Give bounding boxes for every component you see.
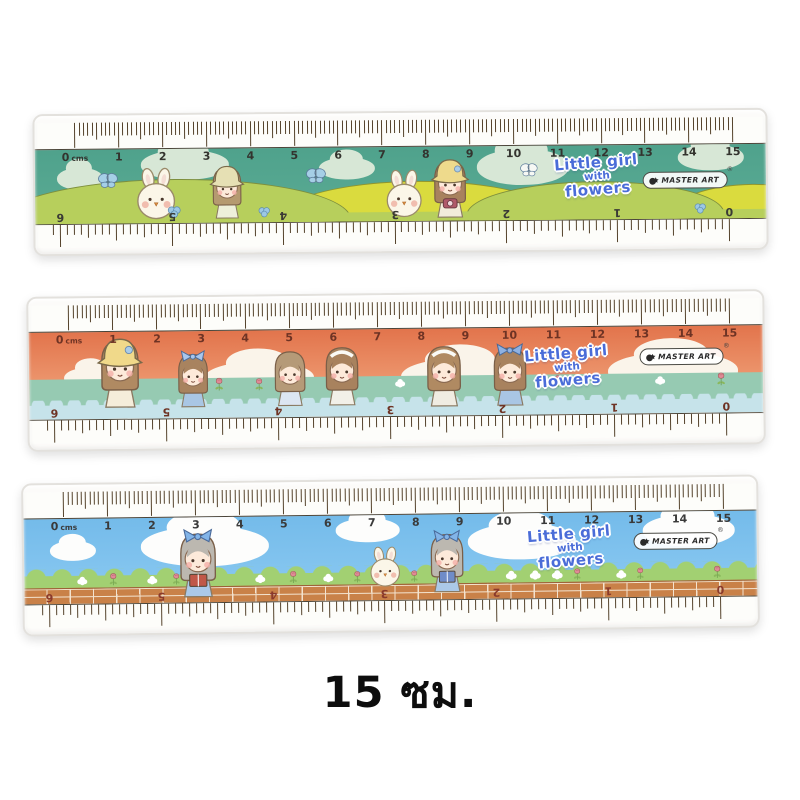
tick-mark [547, 486, 548, 511]
girl-illustration [425, 154, 475, 218]
tick-mark [107, 491, 108, 516]
tick-mark [552, 119, 553, 132]
tick-mark [406, 488, 407, 501]
tick-mark [182, 604, 183, 614]
tick-mark [464, 301, 465, 326]
tick-mark [258, 121, 259, 134]
tick-mark [169, 491, 170, 504]
tick-mark [153, 122, 154, 135]
tick-mark [165, 224, 166, 234]
tick-mark [504, 301, 505, 314]
tick-mark [434, 302, 435, 315]
tick-mark [544, 415, 545, 425]
tick-mark [162, 122, 163, 147]
tick-mark [133, 604, 134, 617]
tick-mark [461, 600, 462, 610]
tick-mark [663, 299, 664, 316]
tick-mark [175, 604, 176, 614]
tick-mark [292, 418, 293, 428]
tick-mark [639, 485, 640, 498]
tick-mark [287, 489, 288, 502]
tick-mark [437, 487, 438, 504]
tick-mark [429, 120, 430, 133]
tick-mark [127, 122, 128, 135]
tick-mark [687, 484, 688, 497]
tick-mark [358, 488, 359, 501]
tick-mark [530, 119, 531, 132]
tick-mark [231, 304, 232, 317]
tick-mark [407, 302, 408, 315]
tick-mark [715, 219, 716, 229]
tick-mark [177, 491, 178, 504]
tick-mark [699, 597, 700, 607]
tick-mark [116, 224, 117, 240]
tick-mark [86, 305, 87, 318]
tick-mark [328, 303, 329, 316]
tick-mark [684, 118, 685, 131]
tick-mark [398, 302, 399, 319]
tick-mark [490, 487, 491, 500]
tick-mark [236, 304, 237, 317]
tick-mark [481, 416, 482, 426]
tick-mark [84, 605, 85, 615]
tick-mark [81, 305, 82, 318]
tick-mark [197, 122, 198, 135]
tick-mark [472, 487, 473, 500]
tick-mark [509, 301, 510, 326]
tick-mark [227, 304, 228, 317]
tick-mark [683, 484, 684, 497]
tick-mark [664, 598, 665, 614]
tick-mark [433, 600, 434, 610]
tick-mark [600, 415, 601, 425]
tick-mark [182, 491, 183, 504]
tick-mark [253, 303, 254, 316]
tick-mark [302, 303, 303, 316]
tick-mark [285, 121, 286, 134]
tick-mark [287, 602, 288, 612]
tick-mark [166, 419, 167, 441]
tick-mark [96, 123, 97, 140]
tick-mark [545, 599, 546, 609]
tick-mark [508, 119, 509, 132]
tick-mark [469, 119, 470, 144]
girl-illustration [417, 339, 470, 408]
tick-mark [688, 117, 689, 142]
tick-mark [535, 301, 536, 314]
tick-mark [474, 416, 475, 429]
tick-mark [139, 305, 140, 318]
tick-mark [548, 119, 549, 132]
tick-mark [442, 301, 443, 318]
tick-mark [315, 303, 316, 316]
tick-mark [478, 301, 479, 314]
tick-mark [617, 485, 618, 498]
tick-mark [399, 601, 400, 611]
tick-mark [724, 299, 725, 312]
tick-mark [482, 119, 483, 132]
tick-mark [91, 605, 92, 615]
tick-mark [125, 305, 126, 318]
tick-mark [390, 417, 391, 439]
tick-mark [685, 597, 686, 607]
tick-mark [173, 491, 174, 508]
tick-mark [436, 222, 437, 232]
tick-mark [261, 490, 262, 507]
tick-mark [451, 120, 452, 133]
tick-mark [504, 119, 505, 132]
tick-mark [343, 602, 344, 612]
tick-mark [174, 304, 175, 317]
tick-mark [604, 485, 605, 498]
tick-mark [144, 224, 145, 237]
tick-mark [196, 603, 197, 613]
tick-mark [692, 597, 693, 610]
tick-mark [732, 117, 733, 142]
tick-mark [195, 490, 196, 515]
tick-mark [193, 122, 194, 135]
tick-mark [580, 599, 581, 612]
tick-mark [557, 119, 558, 144]
tick-mark [168, 604, 169, 614]
tick-mark [178, 224, 179, 234]
tick-mark [495, 301, 496, 314]
tick-mark [649, 414, 650, 424]
tick-mark [432, 417, 433, 427]
tick-mark [160, 491, 161, 504]
tick-mark [266, 303, 267, 320]
tick-mark [73, 305, 74, 318]
tick-mark [134, 305, 135, 322]
tick-mark [332, 303, 333, 328]
tulip-illustration [353, 570, 361, 583]
tick-mark [551, 415, 552, 425]
product-size-caption: 15 ซม. [0, 658, 800, 726]
tick-mark [535, 119, 536, 136]
tick-mark [391, 601, 392, 611]
tick-mark [117, 420, 118, 430]
puff-illustration [76, 576, 88, 586]
tick-mark [346, 120, 347, 133]
tick-mark [239, 490, 240, 515]
tick-mark [223, 122, 224, 135]
tick-mark [165, 304, 166, 317]
tick-mark [175, 122, 176, 135]
tick-mark [121, 305, 122, 318]
tick-mark [285, 418, 286, 428]
tick-mark [670, 414, 671, 430]
tick-mark [183, 304, 184, 317]
tick-mark [499, 221, 500, 231]
tulip-illustration [717, 372, 726, 387]
brand-name: MASTER ART [652, 536, 710, 546]
tick-mark [579, 118, 580, 135]
tick-mark [657, 598, 658, 608]
tick-mark [145, 420, 146, 430]
tick-mark [610, 300, 611, 313]
tick-mark [234, 223, 235, 233]
tick-mark [429, 302, 430, 315]
tick-mark [645, 220, 646, 233]
cloud [678, 144, 744, 171]
tick-mark [274, 489, 275, 502]
tick-mark [47, 421, 48, 431]
tick-mark [575, 300, 576, 317]
tick-mark [387, 222, 388, 232]
tick-mark [68, 420, 69, 430]
tick-mark [627, 118, 628, 131]
tick-mark [322, 602, 323, 612]
tick-mark [510, 600, 511, 610]
masterart-logo-icon [645, 347, 656, 366]
tick-mark [222, 304, 223, 321]
tick-mark [569, 486, 570, 503]
tick-mark [434, 120, 435, 133]
tick-mark [381, 120, 382, 145]
tick-mark [692, 484, 693, 497]
tick-mark [666, 118, 667, 135]
title-little-girl-with-flowers: Little girl with flowers [524, 343, 611, 392]
tick-mark [68, 305, 69, 330]
tick-mark [366, 488, 367, 501]
tick-mark [539, 300, 540, 313]
tick-mark [102, 225, 103, 235]
tick-mark [630, 485, 631, 498]
tick-mark [368, 302, 369, 315]
tick-mark [593, 415, 594, 425]
tick-mark [486, 119, 487, 132]
tick-mark [276, 121, 277, 134]
girl-illustration [317, 340, 368, 407]
tick-mark [138, 420, 139, 433]
tick-mark [509, 416, 510, 426]
tick-mark [460, 301, 461, 314]
tick-mark [526, 301, 527, 314]
tick-mark [201, 419, 202, 429]
tick-mark [482, 301, 483, 314]
tick-mark [491, 301, 492, 314]
tick-mark [362, 417, 363, 430]
tick-mark [149, 122, 150, 135]
tick-mark [76, 492, 77, 505]
tick-mark [371, 488, 372, 513]
tick-mark [689, 299, 690, 312]
tick-mark [169, 304, 170, 317]
tulip-illustration [713, 565, 722, 579]
tick-mark [56, 605, 57, 615]
tick-mark [355, 417, 356, 427]
tick-mark [488, 416, 489, 426]
tick-mark [259, 603, 260, 613]
tick-mark [95, 305, 96, 318]
tick-mark [337, 303, 338, 316]
tick-mark [203, 603, 204, 613]
tick-mark [653, 118, 654, 131]
tick-mark [421, 120, 422, 133]
tick-mark [636, 299, 637, 312]
tick-mark [473, 119, 474, 132]
tick-mark [96, 420, 97, 430]
tick-mark [502, 416, 503, 438]
tulip-illustration [573, 568, 581, 581]
tick-mark [324, 121, 325, 134]
tick-mark [227, 224, 228, 240]
tick-mark [306, 303, 307, 316]
tick-mark [702, 299, 703, 312]
tick-mark [254, 121, 255, 134]
ruler-artwork: Little girl with flowers MASTER ART ® 0c… [35, 143, 767, 225]
tick-mark [720, 299, 721, 312]
tick-mark [600, 485, 601, 498]
tick-mark [350, 302, 351, 315]
tick-mark [638, 220, 639, 230]
tick-mark [632, 300, 633, 313]
tick-mark [289, 121, 290, 134]
tick-mark [394, 120, 395, 133]
tick-mark [322, 489, 323, 502]
tick-mark [108, 305, 109, 318]
tick-mark [87, 123, 88, 136]
tick-mark [186, 490, 187, 503]
tick-mark [245, 121, 246, 134]
tick-mark [710, 117, 711, 134]
tick-mark [677, 414, 678, 424]
tick-mark [712, 414, 713, 424]
tick-mark [520, 221, 521, 231]
tick-mark [81, 492, 82, 505]
tick-mark [140, 604, 141, 614]
tick-mark [349, 488, 350, 505]
tick-mark [100, 123, 101, 136]
tulip-illustration [289, 570, 298, 584]
tick-mark [300, 489, 301, 502]
clover-illustration [166, 204, 182, 219]
tick-mark [278, 418, 279, 440]
girl-illustration [266, 345, 314, 407]
tick-mark [306, 418, 307, 431]
tick-mark [257, 418, 258, 428]
tick-mark [393, 488, 394, 505]
tick-mark [565, 415, 566, 425]
tick-mark [587, 118, 588, 131]
tick-mark [157, 122, 158, 135]
tick-mark [273, 602, 274, 624]
tick-mark [720, 597, 721, 619]
tick-mark [362, 488, 363, 501]
tick-mark [324, 303, 325, 316]
tick-mark [377, 120, 378, 133]
tick-mark [657, 485, 658, 502]
tick-mark [272, 121, 273, 138]
tick-mark [380, 488, 381, 501]
tick-mark [385, 302, 386, 315]
tick-mark [517, 119, 518, 132]
tick-mark [280, 121, 281, 134]
tick-mark [341, 303, 342, 316]
tick-mark [671, 299, 672, 312]
tick-mark [503, 600, 504, 610]
tick-mark [353, 222, 354, 232]
tick-mark [556, 486, 557, 499]
tick-mark [531, 599, 532, 609]
tick-mark [131, 420, 132, 430]
masterart-logo: MASTER ART ® [633, 532, 718, 550]
tick-mark [476, 487, 477, 500]
tick-mark [372, 302, 373, 315]
tick-mark [418, 417, 419, 430]
tick-mark [89, 492, 90, 505]
girl-illustration [169, 348, 216, 408]
tick-mark [471, 221, 472, 231]
tick-mark [621, 415, 622, 425]
cloud [335, 518, 399, 543]
tick-mark [244, 304, 245, 329]
tick-mark [63, 492, 64, 517]
tick-mark [240, 304, 241, 317]
tick-mark [537, 416, 538, 426]
tick-mark [714, 484, 715, 497]
tick-mark [722, 219, 723, 229]
tick-mark [156, 304, 157, 329]
tick-mark [644, 118, 645, 143]
tick-mark [301, 602, 302, 615]
tick-mark [67, 225, 68, 235]
tick-mark [723, 117, 724, 130]
tick-mark [463, 487, 464, 500]
tick-mark [232, 121, 233, 134]
ruler-sunset-theme: Little girl with flowers MASTER ART ® 0c… [26, 289, 766, 452]
tick-mark [228, 121, 229, 138]
tick-mark [605, 300, 606, 313]
tick-mark [359, 120, 360, 137]
tick-mark [529, 486, 530, 499]
tick-mark [447, 120, 448, 137]
tick-mark [264, 418, 265, 428]
tick-mark [531, 301, 532, 318]
tick-mark [288, 303, 289, 328]
tick-mark [236, 419, 237, 429]
tick-mark [654, 299, 655, 312]
bunny-illustration [366, 546, 405, 588]
tick-mark [526, 119, 527, 132]
tick-mark [701, 484, 702, 501]
tick-mark [420, 302, 421, 327]
tick-mark [81, 225, 82, 235]
tick-mark [694, 219, 695, 229]
tick-mark [694, 299, 695, 312]
tick-mark [617, 220, 618, 242]
tick-mark [215, 122, 216, 135]
tick-mark [125, 491, 126, 504]
tick-mark [671, 118, 672, 131]
tick-mark [360, 222, 361, 232]
tick-mark [164, 491, 165, 504]
tick-mark [522, 301, 523, 314]
tick-mark [603, 220, 604, 230]
tick-mark [394, 222, 395, 244]
tick-mark [513, 221, 514, 231]
tick-mark [369, 417, 370, 427]
tick-mark [117, 305, 118, 318]
tick-mark [270, 489, 271, 502]
tick-mark [557, 300, 558, 313]
tick-mark [661, 485, 662, 498]
tick-mark [527, 221, 528, 231]
tick-mark [53, 225, 54, 235]
tick-mark [629, 598, 630, 608]
tick-mark [231, 603, 232, 613]
tick-mark [219, 122, 220, 135]
